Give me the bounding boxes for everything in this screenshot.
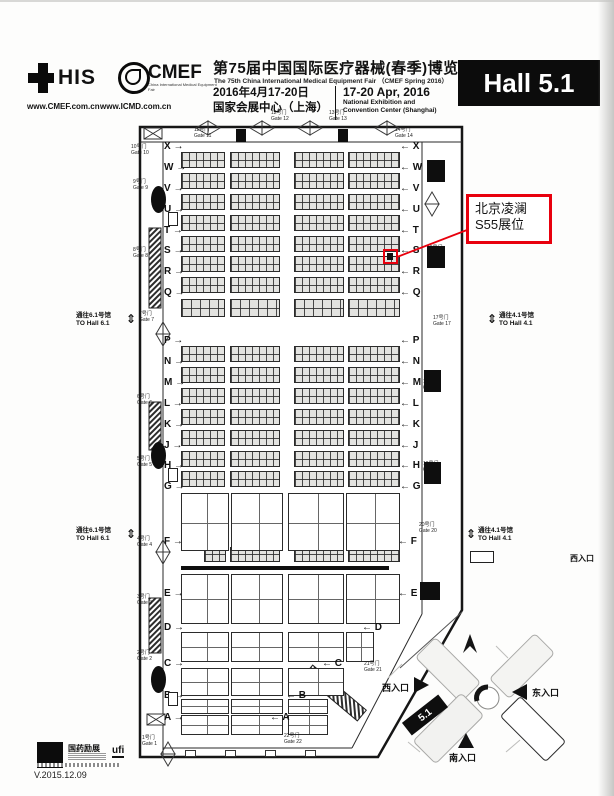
booth-strip-row-W: [294, 173, 344, 189]
booth-strip-row-S: [348, 256, 400, 272]
booth-strip-row-U: [181, 215, 225, 231]
version-label: V.2015.12.09: [34, 770, 87, 780]
booth-block: [346, 574, 400, 624]
row-letter-right-T: ← T: [400, 225, 419, 236]
booth-block: [181, 668, 229, 696]
facility-block: [424, 462, 441, 484]
gate-label-7: 7号门Gate 7: [139, 312, 154, 323]
gate-label-2: 2号门Gate 2: [137, 651, 152, 662]
booth-strip-row-R: [230, 277, 280, 293]
facility-block: [427, 246, 445, 268]
booth-strip-row-X: [230, 152, 280, 168]
booth-strip-row-J: [181, 451, 225, 467]
booth-strip-row-K: [181, 430, 225, 446]
booth-strip-row-T: [181, 236, 225, 252]
facility-block: [420, 582, 440, 600]
booth-block: [288, 493, 344, 551]
row-letter-right-H: ← H: [400, 460, 420, 471]
gate-label-17: 17号门Gate 17: [433, 316, 451, 327]
gate-label-13: 13号门Gate 13: [329, 111, 347, 122]
booth-strip-row-U: [230, 215, 280, 231]
booth-strip-row-V: [294, 194, 344, 210]
row-letter-left-G: G →: [164, 481, 185, 492]
booth-strip-row-S: [294, 256, 344, 272]
annotation-line1: 北京凌澜: [475, 201, 547, 217]
booth-strip-row-W: [348, 173, 400, 189]
updown-arrow-icon: ⇕: [487, 312, 497, 326]
booth-strip-row-L: [348, 409, 400, 425]
row-letter-right-V: ← V: [400, 183, 419, 194]
passage-to-hall61-top: 通往6.1号馆TO Hall 6.1: [76, 312, 111, 328]
row-letter-right-R: ← R: [400, 266, 420, 277]
booth-strip-row-S: [181, 256, 225, 272]
booth-strip-row-J: [230, 451, 280, 467]
booth-block: [346, 493, 400, 551]
booth-strip-row-V: [230, 194, 280, 210]
row-letter-right-W: ← W: [400, 162, 422, 173]
row-letter-left-F: F →: [164, 536, 183, 547]
row-letter-right-U: ← U: [400, 204, 420, 215]
booth-block: [346, 632, 374, 662]
booth-strip-row-K: [230, 430, 280, 446]
booth-block: [231, 493, 283, 551]
row-letter-right-Q: ← Q: [400, 287, 421, 298]
row-letter-right-L: ← L: [400, 398, 419, 409]
gate-label-11: 11号门Gate 11: [194, 128, 211, 139]
booth-strip-row-R: [181, 277, 225, 293]
legend-box: [470, 551, 494, 563]
gate-label-8: 8号门Gate 8: [133, 248, 148, 259]
row-letter-left-E: E →: [164, 588, 183, 599]
row-letter-right-X: ← X: [400, 141, 419, 152]
floorplan-booth-layer: X →← XW →← WV →← VU →← UT →← TS →← SR →←…: [0, 0, 614, 796]
booth-strip-row-H: [294, 471, 344, 487]
booth-strip-row-L: [230, 409, 280, 425]
row-letter-left-P: P →: [164, 335, 183, 346]
booth-strip-row-N: [181, 367, 225, 383]
booth-strip-row-J: [294, 451, 344, 467]
footer-fineprint-blur: [37, 763, 119, 767]
gate-label-10: 10号门Gate 10: [131, 145, 149, 156]
dock-door: [265, 750, 276, 757]
booth-strip-row-U: [348, 215, 400, 231]
booth-strip-row-Q: [230, 299, 280, 317]
gate-label-20: 20号门Gate 20: [419, 523, 437, 534]
row-letter-right-K: ← K: [400, 419, 420, 430]
pillar: [338, 129, 348, 142]
row-letter-right-E: ← E: [398, 588, 417, 599]
booth-strip-row-M: [294, 388, 344, 404]
booth-strip-row-H: [181, 471, 225, 487]
door-box: [168, 468, 178, 482]
scanned-floorplan-page: HIS CMEF China International Medical Equ…: [0, 0, 614, 796]
page-edge-right: [598, 0, 614, 796]
booth-strip-row-K: [348, 430, 400, 446]
booth-strip-row-J: [348, 451, 400, 467]
booth-strip-row-P: [181, 346, 225, 362]
booth-strip-row-T: [230, 236, 280, 252]
revolving-door-icon: [151, 186, 166, 213]
row-letter-right-N: ← N: [400, 356, 420, 367]
row-letter-right-P: ← P: [400, 335, 419, 346]
row-letter-left-W: W →: [164, 162, 186, 173]
gate-label-21: 21号门Gate 21: [364, 662, 382, 673]
row-letter-left-C: C →: [164, 658, 184, 669]
booth-block: [288, 715, 328, 735]
minimap-south-entrance-label: 南入口: [449, 751, 476, 764]
gate-label-5: 5号门Gate 5: [137, 457, 152, 468]
booth-strip-row-P: [348, 346, 400, 362]
row-letter-left-L: L →: [164, 398, 183, 409]
booth-strip-row-N: [230, 367, 280, 383]
booth-strip-row-S: [230, 256, 280, 272]
booth-block: [288, 574, 344, 624]
minimap-west-entrance-label: 西入口: [382, 681, 409, 694]
row-letter-left-X: X →: [164, 141, 183, 152]
gate-label-1: 1号门Gate 1: [142, 736, 157, 747]
booth-strip-row-M: [181, 388, 225, 404]
booth-strip-row-M: [230, 388, 280, 404]
passage-to-hall41-top: 通往4.1号馆TO Hall 4.1: [499, 312, 534, 328]
row-letter-left-D: D →: [164, 622, 184, 633]
booth-strip-row-M: [348, 388, 400, 404]
booth-strip-row-W: [181, 173, 225, 189]
booth-strip-row-V: [348, 194, 400, 210]
booth-block: [181, 493, 229, 551]
booth-strip-row-L: [294, 409, 344, 425]
booth-strip-row-K: [294, 430, 344, 446]
ufi-logo: ufi: [112, 745, 124, 758]
dock-door: [305, 750, 316, 757]
booth-strip-row-R: [348, 277, 400, 293]
row-letter-left-S: S →: [164, 245, 183, 256]
dock-door: [185, 750, 196, 757]
south-arrow-icon: [458, 733, 474, 748]
booth-strip-row-H: [230, 471, 280, 487]
booth-strip-row-N: [294, 367, 344, 383]
booth-strip-row-X: [348, 152, 400, 168]
updown-arrow-icon: ⇕: [126, 527, 136, 541]
brand-subtext-blur: [68, 753, 106, 760]
minimap-east-entrance-label: 东入口: [532, 686, 559, 699]
passage-to-hall61-bottom: 通往6.1号馆TO Hall 6.1: [76, 527, 111, 543]
booth-block: [181, 574, 229, 624]
facility-block: [427, 160, 445, 182]
booth-block: [231, 632, 283, 662]
facility-block: [424, 370, 441, 392]
booth-strip-row-P: [230, 346, 280, 362]
gate-label-4: 4号门Gate 4: [137, 537, 152, 548]
revolving-door-icon: [151, 442, 166, 469]
booth-block: [288, 699, 328, 714]
booth-strip-row-H: [348, 471, 400, 487]
booth-strip-row-T: [348, 236, 400, 252]
booth-block: [181, 632, 229, 662]
row-letter-left-R: R →: [164, 266, 184, 277]
row-letter-left-M: M →: [164, 377, 185, 388]
row-letter-left-N: N →: [164, 356, 184, 367]
row-letter-right-C: ← C: [322, 658, 342, 669]
west-entrance-edge-label: 西入口: [570, 553, 594, 564]
row-letter-right-B: ← B: [286, 690, 306, 701]
row-letter-right-A: ← A: [270, 712, 290, 723]
revolving-door-icon: [151, 666, 166, 693]
row-letter-right-D: ← D: [362, 622, 382, 633]
passage-to-hall41-bottom: 通往4.1号馆TO Hall 4.1: [478, 527, 513, 543]
row-letter-right-J: ← J: [400, 440, 418, 451]
booth-strip-row-W: [230, 173, 280, 189]
updown-arrow-icon: ⇕: [466, 527, 476, 541]
booth-strip-row-V: [181, 194, 225, 210]
booth-strip-row-T: [294, 236, 344, 252]
row-letter-left-J: J →: [164, 440, 182, 451]
wall-bar: [181, 566, 389, 570]
east-arrow-icon: [512, 684, 527, 700]
booth-annotation-callout: 北京凌澜 S55展位: [466, 194, 552, 244]
gate-label-14: 14号门Gate 14: [395, 128, 413, 139]
booth-strip-row-U: [294, 215, 344, 231]
gate-label-22: 22号门Gate 22: [284, 734, 302, 745]
row-letter-left-V: V →: [164, 183, 183, 194]
booth-block: [181, 699, 229, 714]
row-letter-left-A: A →: [164, 712, 184, 723]
booth-block: [231, 668, 283, 696]
annotation-line2: S55展位: [475, 217, 547, 233]
pillar: [236, 129, 246, 142]
booth-strip-row-R: [294, 277, 344, 293]
row-letter-right-M: ← M: [400, 377, 421, 388]
booth-strip-row-P: [294, 346, 344, 362]
booth-strip-row-X: [181, 152, 225, 168]
booth-strip-row-Q: [181, 299, 225, 317]
booth-block: [181, 715, 229, 735]
row-letter-left-K: K →: [164, 419, 184, 430]
gate-label-9: 9号门Gate 9: [133, 180, 148, 191]
dock-door: [225, 750, 236, 757]
booth-block: [231, 574, 283, 624]
row-letter-left-Q: Q →: [164, 287, 185, 298]
booth-strip-row-X: [294, 152, 344, 168]
row-letter-right-S: ← S: [400, 245, 419, 256]
booth-strip-row-Q: [294, 299, 344, 317]
gate-label-12: 12号门Gate 12: [271, 111, 289, 122]
door-box: [168, 692, 178, 706]
row-letter-right-F: ← F: [398, 536, 417, 547]
gate-label-6: 6号门Gate 6: [137, 395, 152, 406]
row-letter-left-T: T →: [164, 225, 183, 236]
updown-arrow-icon: ⇕: [126, 312, 136, 326]
gate-label-3: 3号门Gate 3: [137, 595, 152, 606]
booth-strip-row-Q: [348, 299, 400, 317]
door-box: [168, 212, 178, 226]
booth-strip-row-L: [181, 409, 225, 425]
booth-strip-row-N: [348, 367, 400, 383]
row-letter-right-G: ← G: [400, 481, 421, 492]
west-arrow-icon: [414, 677, 429, 693]
